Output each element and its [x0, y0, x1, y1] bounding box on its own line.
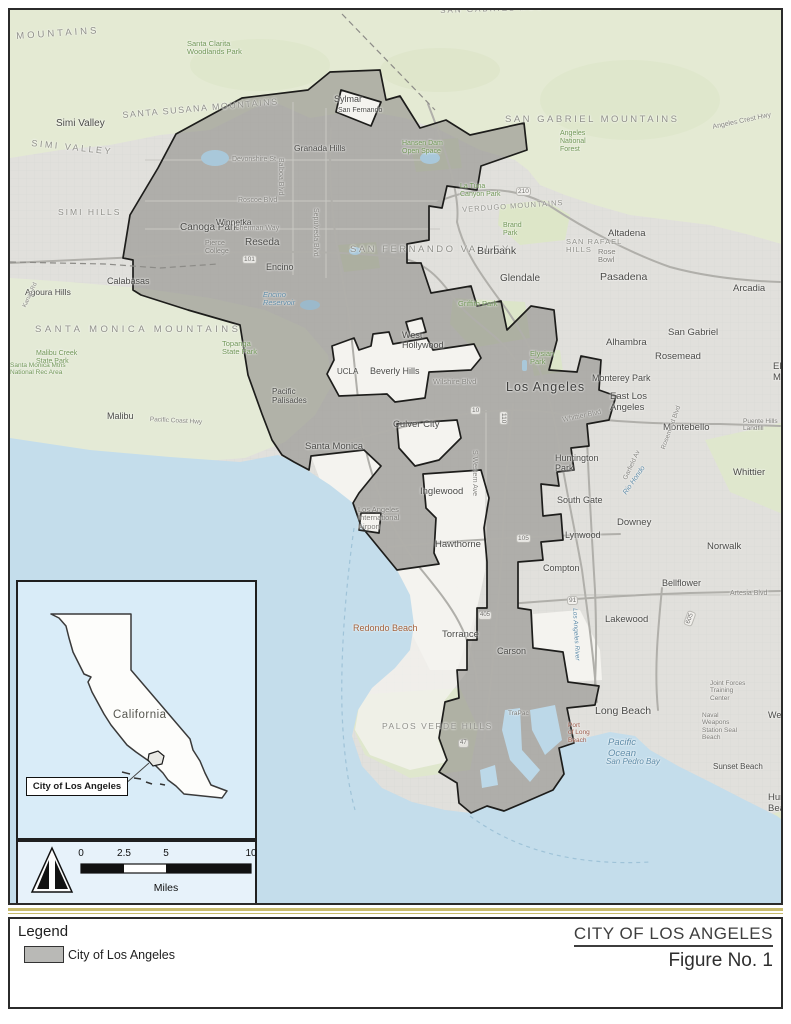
map-label: Artesia Blvd [730, 590, 767, 598]
map-label: La Tuna Canyon Park [460, 183, 500, 199]
map-label: Sylmar [334, 94, 362, 104]
scale-tick: 2.5 [117, 848, 131, 859]
map-label: Wilshire Blvd [433, 378, 476, 386]
map-label: Roscoe Blvd [238, 197, 277, 205]
map-label: Rose Bowl [598, 248, 616, 265]
map-label: Angeles National Forest [560, 130, 586, 153]
map-label: Lakewood [605, 615, 648, 626]
map-label: Rosemead [655, 352, 701, 363]
map-label: Los Angeles International Airport [358, 506, 399, 531]
map-label: Encino [266, 262, 294, 272]
map-label: PALOS VERDE HILLS [382, 722, 493, 732]
channel-islands [122, 772, 165, 785]
map-label: Culver City [393, 420, 439, 431]
map-label: Calabasas [107, 276, 150, 286]
map-label: Hansen Dam Open Space [402, 140, 443, 156]
figure-title: CITY OF LOS ANGELES [574, 924, 773, 947]
figure-page: MOUNTAINSSAN GABRIEL MOUNTAINSSANTA SUSA… [0, 0, 791, 1024]
map-label: Puente Hills Landfill [743, 418, 778, 433]
california-outline [51, 614, 227, 798]
map-label: 405 [478, 611, 492, 620]
legend-panel: Legend City of Los Angeles CITY OF LOS A… [8, 917, 783, 1009]
map-label: Burbank [477, 246, 516, 258]
map-label: West Hollywood [402, 330, 444, 350]
scale-unit-label: Miles [154, 882, 179, 894]
state-label: California [113, 709, 167, 721]
map-label: Westminster [768, 710, 783, 720]
scale-bar-box: 02.5510 Miles [16, 840, 257, 905]
map-label: Santa Monica [305, 442, 363, 453]
map-label: Griffith Park [458, 300, 497, 308]
map-label: Los Angeles [506, 380, 585, 394]
map-label: VERDUGO MOUNTAINS [462, 199, 564, 214]
map-label: Angeles Crest Hwy [712, 112, 772, 132]
map-label: Pasadena [600, 272, 647, 284]
inset-callout-box: City of Los Angeles [26, 777, 128, 796]
map-label: Inglewood [420, 487, 463, 498]
map-label: Whittier Blvd [562, 409, 602, 425]
city-swatch-icon [24, 946, 64, 963]
scale-tick: 0 [78, 848, 84, 859]
scale-tick: 10 [245, 848, 256, 859]
map-label: MOUNTAINS [16, 26, 100, 42]
map-label: Pierce College [205, 240, 229, 256]
map-label: Carson [497, 646, 526, 656]
map-label: 605 [683, 610, 697, 627]
map-label: Torrance [442, 630, 479, 641]
map-label: Sherman Way [235, 225, 279, 233]
north-arrow-icon [32, 848, 72, 892]
legend-block: Legend City of Los Angeles [10, 919, 175, 1007]
map-label: Granada Hills [294, 144, 346, 154]
map-label: 105 [516, 534, 531, 543]
separator-line [8, 908, 783, 914]
map-label: Santa Clarita Woodlands Park [187, 40, 242, 57]
map-label: Elysian Park [530, 350, 554, 367]
map-label: SIMI HILLS [58, 208, 121, 218]
map-label: 10 [470, 406, 481, 415]
map-label: Devonshire St [232, 156, 276, 164]
map-label: Huntington Beach [768, 793, 783, 814]
map-label: Simi Valley [56, 118, 105, 129]
map-label: Redondo Beach [353, 623, 418, 633]
map-label: Arcadia [733, 284, 765, 295]
california-inset-map: California City of Los Angeles [16, 580, 257, 840]
map-label: Whittier [733, 468, 765, 479]
map-label: Monterey Park [592, 373, 651, 383]
map-label: Reseda [245, 237, 279, 248]
legend-item-label: City of Los Angeles [68, 948, 175, 962]
map-label: Santa Monica Mtns National Rec Area [10, 362, 66, 377]
map-label: 110 [499, 411, 508, 425]
map-label: SAN GABRIEL MOUNTAINS [440, 8, 585, 16]
map-label: Joint Forces Training Center [710, 680, 745, 702]
map-label: San Pedro Bay [606, 758, 660, 767]
legend-item: City of Los Angeles [24, 946, 175, 963]
map-label: SIMI VALLEY [31, 138, 113, 157]
la-city-marker [148, 751, 164, 766]
scale-tick: 5 [163, 848, 169, 859]
map-label: Hawthorne [435, 540, 481, 551]
map-label: Pacific Palisades [272, 388, 307, 406]
map-label: Long Beach [595, 706, 651, 718]
map-label: Altadena [608, 229, 646, 240]
map-label: Alhambra [606, 338, 647, 349]
map-label: Glendale [500, 273, 540, 284]
map-label: Bellflower [662, 578, 701, 588]
map-label: 210 [516, 187, 531, 196]
map-label: SANTA MONICA MOUNTAINS [35, 325, 242, 336]
scale-graphics [18, 842, 255, 903]
map-label: SAN GABRIEL MOUNTAINS [505, 115, 679, 126]
map-label: San Gabriel [668, 328, 718, 339]
map-label: Brand Park [503, 222, 522, 238]
main-map: MOUNTAINSSAN GABRIEL MOUNTAINSSANTA SUSA… [8, 8, 783, 905]
map-label: S Western Ave [470, 450, 478, 496]
map-label: Balboa Blvd [276, 158, 284, 195]
map-label: Sunset Beach [713, 763, 763, 772]
map-label: Huntington Park [555, 453, 599, 473]
map-label: Beverly Hills [370, 366, 420, 376]
map-label: 91 [567, 596, 578, 605]
scale-bar [81, 864, 251, 873]
map-label: Los Angeles River [571, 608, 581, 661]
map-label: Sepulveda Blvd [311, 208, 319, 257]
map-label: Topanga State Park [222, 340, 257, 357]
map-label: UCLA [337, 368, 358, 377]
map-label: Norwalk [707, 542, 741, 553]
map-label: TraPac [508, 710, 529, 717]
map-label: Downey [617, 518, 651, 529]
map-label: 47 [458, 739, 469, 748]
map-label: East Los Angeles [610, 392, 647, 413]
map-label: Compton [543, 563, 580, 573]
map-label: San Fernando [338, 107, 382, 115]
map-label: South Gate [557, 495, 603, 505]
map-label: SANTA SUSANA MOUNTAINS [122, 96, 279, 120]
map-label: Lynwood [565, 530, 601, 540]
map-label: El Monte [773, 362, 783, 383]
map-label: Pacific Coast Hwy [150, 416, 203, 426]
map-label: 101 [242, 255, 257, 264]
map-label: Encino Reservoir [263, 291, 295, 308]
map-label: Port of Long Beach [568, 722, 590, 744]
map-label: Naval Weapons Station Seal Beach [702, 712, 737, 741]
map-label: Malibu [107, 411, 134, 421]
title-block: CITY OF LOS ANGELES Figure No. 1 [574, 919, 781, 1007]
figure-number: Figure No. 1 [574, 950, 773, 972]
legend-title: Legend [18, 923, 175, 940]
